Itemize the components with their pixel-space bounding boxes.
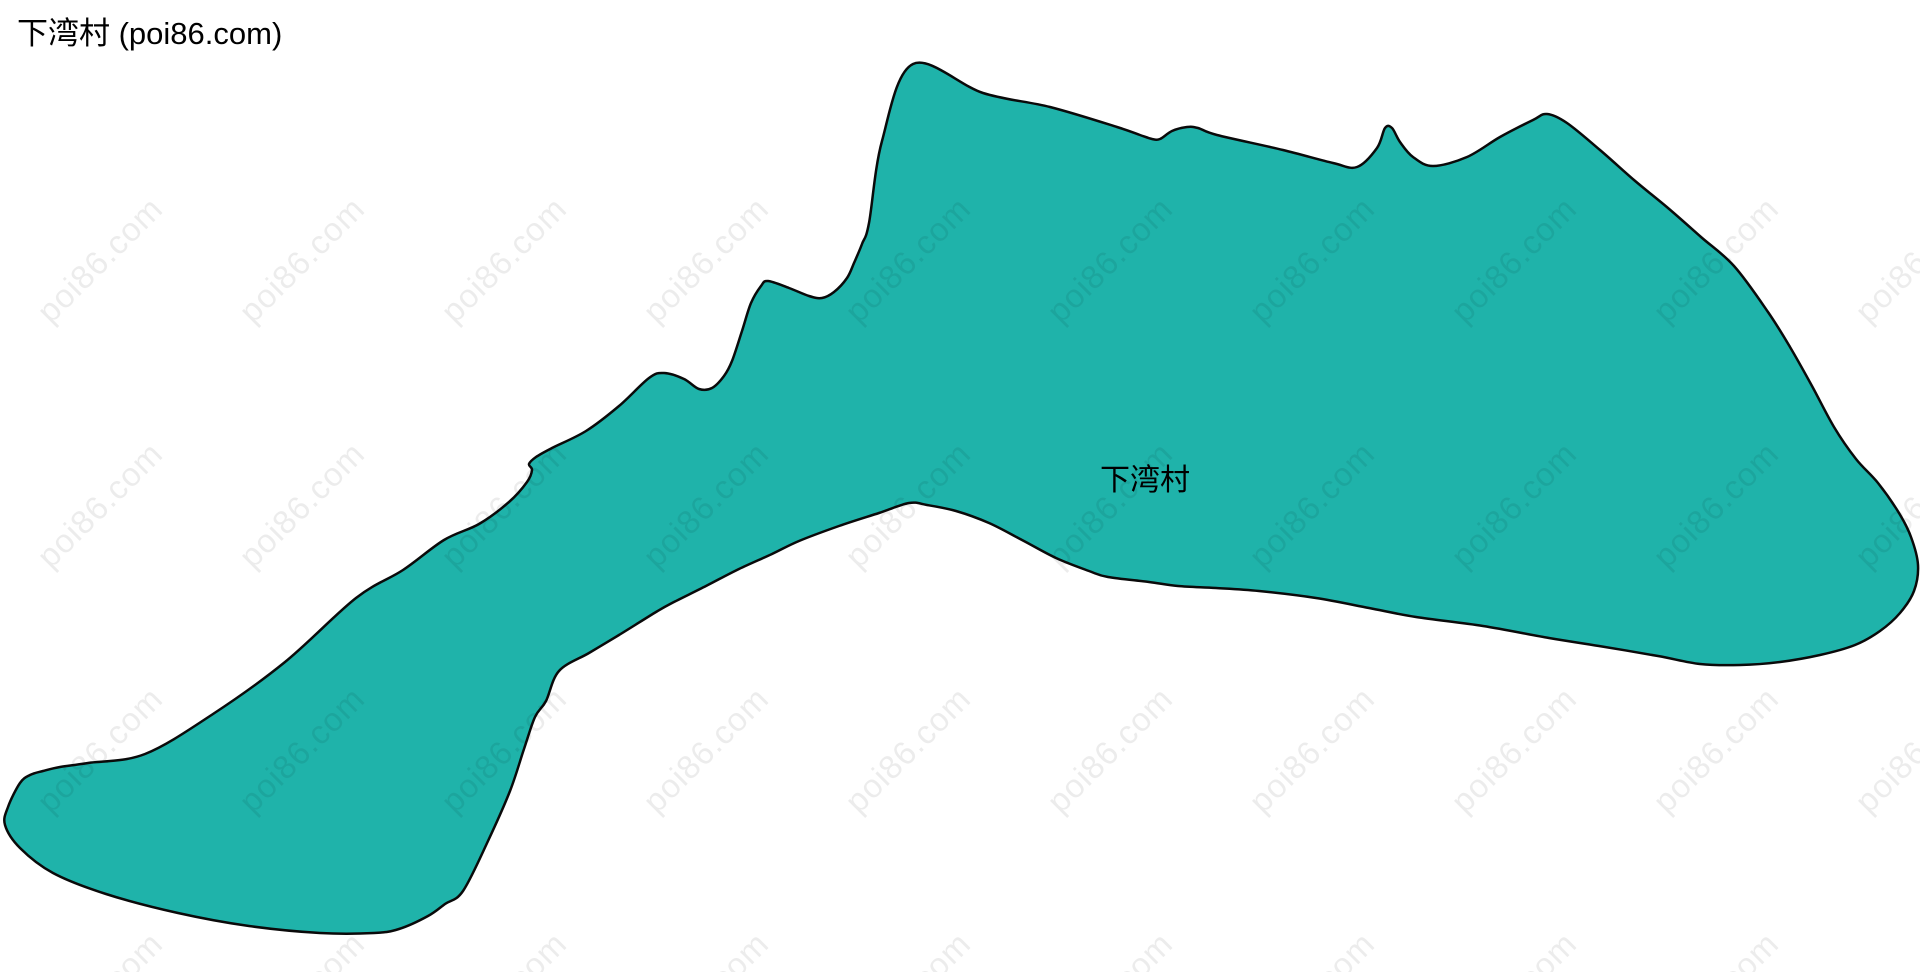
page-title: 下湾村 (poi86.com) — [17, 8, 282, 53]
region-label: 下湾村 — [1100, 455, 1190, 499]
region-polygon — [4, 63, 1918, 934]
region-map-svg — [0, 0, 1920, 972]
map-canvas: poi86.compoi86.compoi86.compoi86.compoi8… — [0, 0, 1920, 972]
